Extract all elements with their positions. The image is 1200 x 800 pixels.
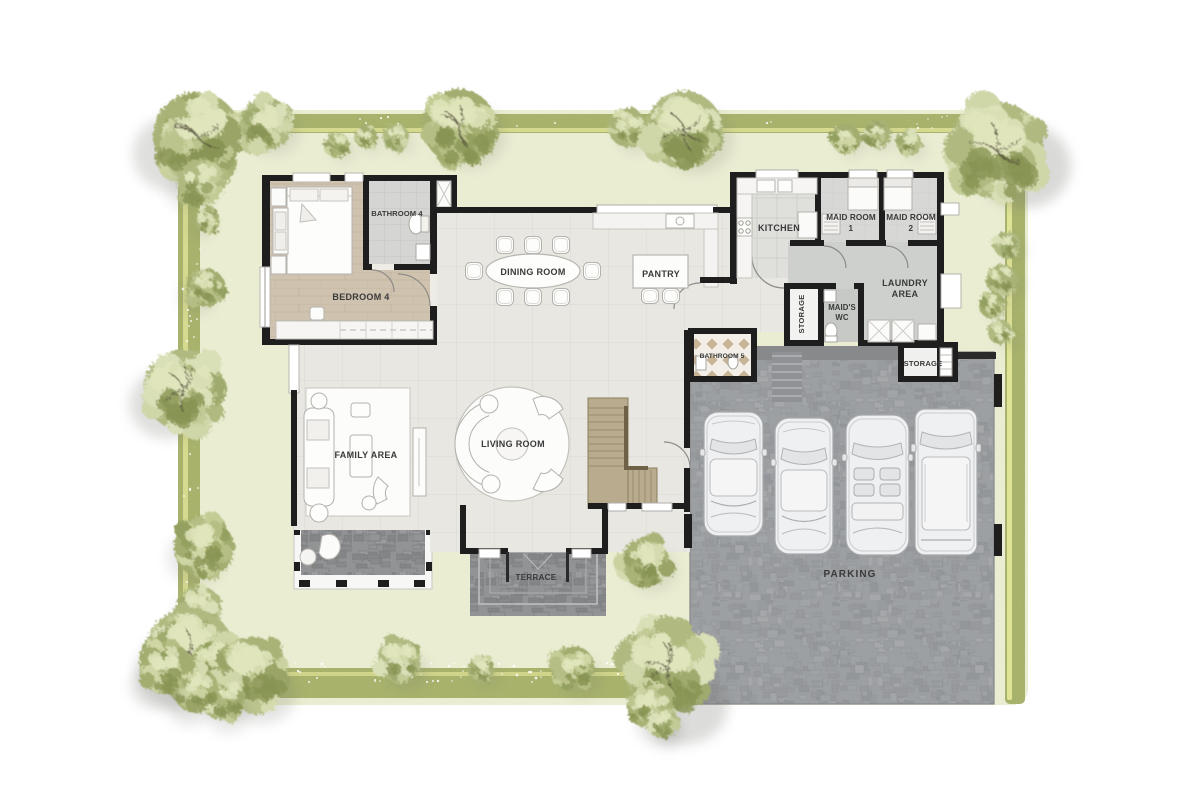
svg-text:MAID ROOM: MAID ROOM xyxy=(886,213,936,222)
svg-text:TERRACE: TERRACE xyxy=(516,573,557,582)
svg-text:MAID'S: MAID'S xyxy=(828,303,856,312)
svg-text:BEDROOM 4: BEDROOM 4 xyxy=(332,292,389,302)
svg-text:PARKING: PARKING xyxy=(823,569,876,580)
svg-text:WC: WC xyxy=(835,313,848,322)
svg-text:LIVING ROOM: LIVING ROOM xyxy=(481,439,545,449)
svg-text:2: 2 xyxy=(909,224,914,233)
svg-text:KITCHEN: KITCHEN xyxy=(758,223,800,233)
svg-text:AREA: AREA xyxy=(892,289,919,299)
svg-text:PANTRY: PANTRY xyxy=(642,269,680,279)
svg-text:1: 1 xyxy=(849,224,854,233)
svg-text:LAUNDRY: LAUNDRY xyxy=(882,278,928,288)
svg-text:STORAGE: STORAGE xyxy=(797,294,806,333)
svg-text:BATHROOM 4: BATHROOM 4 xyxy=(371,209,423,218)
svg-text:DINING ROOM: DINING ROOM xyxy=(500,267,565,277)
svg-text:BATHROOM 5: BATHROOM 5 xyxy=(700,353,745,360)
svg-text:STORAGE: STORAGE xyxy=(904,359,943,368)
svg-text:FAMILY AREA: FAMILY AREA xyxy=(335,450,398,460)
svg-text:MAID ROOM: MAID ROOM xyxy=(826,213,876,222)
